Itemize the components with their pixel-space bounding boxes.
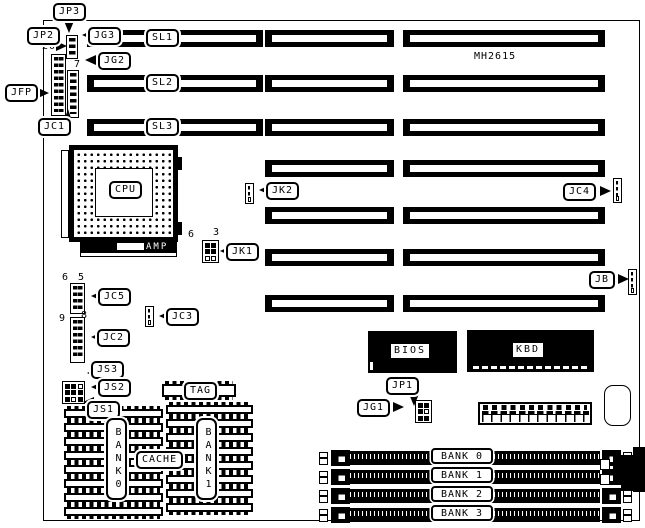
motherboard-layout-diagram: MH2615 SL1 SL2 SL3 20 7 JP3 JP2 JG3 JG2 … bbox=[0, 0, 645, 528]
slot-row5-mid bbox=[265, 207, 394, 224]
jc3-header bbox=[145, 306, 154, 327]
label-sl2: SL2 bbox=[146, 74, 179, 92]
clip-hook bbox=[607, 511, 616, 519]
jc5-pin6-number: 6 bbox=[62, 272, 69, 283]
simm-clip bbox=[331, 507, 350, 523]
cpu-socket-lever bbox=[61, 150, 69, 238]
simm-slot-bank2: BANK 2 bbox=[319, 488, 633, 504]
label-jp2: JP2 bbox=[27, 27, 60, 45]
jk1-pin3-number: 3 bbox=[213, 227, 220, 238]
cpu-socket-tab-top bbox=[177, 157, 182, 170]
label-jc3: JC3 bbox=[166, 308, 199, 326]
label-jc1: JC1 bbox=[38, 118, 71, 136]
label-jg1: JG1 bbox=[357, 399, 390, 417]
jg1-pointer bbox=[393, 402, 409, 412]
keyboard-din-connector-body bbox=[613, 455, 645, 485]
label-cpu: CPU bbox=[109, 181, 142, 199]
label-cache-bank1: BANK1 bbox=[196, 418, 217, 500]
pin bbox=[65, 397, 70, 402]
jc4-pointer bbox=[600, 186, 616, 196]
slot-groove bbox=[410, 300, 598, 307]
label-jfp: JFP bbox=[5, 84, 38, 102]
pin bbox=[71, 397, 76, 402]
jp3-pointer bbox=[64, 21, 74, 38]
slot-groove bbox=[272, 35, 387, 42]
label-tag: TAG bbox=[184, 382, 217, 400]
slot-row4-right bbox=[403, 160, 605, 177]
label-cache-bank0: BANK0 bbox=[106, 418, 127, 500]
model-number: MH2615 bbox=[474, 51, 516, 62]
clip-hook bbox=[336, 473, 345, 481]
simm-slot-bank1: BANK 1 bbox=[319, 469, 633, 485]
endcap-divider bbox=[320, 457, 327, 459]
power-connector bbox=[478, 402, 592, 425]
slot-groove bbox=[410, 80, 598, 87]
simm-endcap bbox=[319, 452, 328, 465]
jc2-pin9-number: 9 bbox=[59, 313, 66, 324]
slot-row7-mid bbox=[265, 295, 394, 312]
jc2-header bbox=[70, 317, 85, 363]
slot-groove bbox=[410, 165, 598, 172]
label-sl1: SL1 bbox=[146, 29, 179, 47]
jg2-pointer bbox=[80, 55, 96, 65]
label-jg3: JG3 bbox=[88, 27, 121, 45]
simm-endcap bbox=[319, 509, 328, 522]
endcap-divider bbox=[624, 495, 631, 497]
endcap-divider bbox=[320, 514, 327, 516]
slot-row6-mid bbox=[265, 249, 394, 266]
pin bbox=[71, 384, 76, 389]
slot-row7-right bbox=[403, 295, 605, 312]
pin bbox=[205, 243, 210, 248]
endcap-divider bbox=[624, 514, 631, 516]
slot-row3-right bbox=[403, 119, 605, 136]
cache-chip bbox=[166, 503, 253, 512]
simm-endcap bbox=[319, 471, 328, 484]
bios-pin1-notch bbox=[370, 362, 373, 370]
power-connector-pin-holes bbox=[482, 414, 589, 422]
slot-row4-mid bbox=[265, 160, 394, 177]
pin bbox=[205, 249, 210, 254]
jc5-pin5-number: 5 bbox=[78, 272, 85, 283]
simm-slot-bank3: BANK 3 bbox=[319, 507, 633, 523]
cache-chip bbox=[64, 507, 163, 516]
slot-row3-mid bbox=[265, 119, 394, 136]
label-jg2: JG2 bbox=[98, 52, 131, 70]
label-jb: JB bbox=[589, 271, 615, 289]
slot-groove bbox=[410, 254, 598, 261]
din-mount-notch bbox=[600, 459, 610, 470]
slot-groove bbox=[272, 300, 387, 307]
simm-endcap bbox=[319, 490, 328, 503]
label-js2: JS2 bbox=[98, 379, 131, 397]
simm-endcap bbox=[623, 509, 632, 522]
pin bbox=[65, 390, 70, 395]
pin bbox=[424, 403, 429, 408]
simm-clip bbox=[331, 469, 350, 485]
label-js3: JS3 bbox=[91, 361, 124, 379]
label-cache: CACHE bbox=[136, 451, 183, 469]
label-js1: JS1 bbox=[87, 401, 120, 419]
slot-groove bbox=[272, 80, 387, 87]
slot-row1-mid bbox=[265, 30, 394, 47]
pin bbox=[65, 384, 70, 389]
slot-groove bbox=[410, 212, 598, 219]
slot-row5-right bbox=[403, 207, 605, 224]
label-jp3: JP3 bbox=[53, 3, 86, 21]
keyboard-din-connector-step bbox=[621, 485, 645, 491]
label-jp1: JP1 bbox=[386, 377, 419, 395]
jk1-pin6-number: 6 bbox=[188, 229, 195, 240]
simm-clip bbox=[331, 450, 350, 466]
label-jc4: JC4 bbox=[563, 183, 596, 201]
amp-brand-text: AMP bbox=[146, 242, 168, 253]
battery-outline bbox=[604, 385, 631, 426]
clip-hook bbox=[607, 492, 616, 500]
jp1-pointer bbox=[409, 394, 419, 411]
endcap-divider bbox=[320, 476, 327, 478]
pin bbox=[71, 390, 76, 395]
amp-socket-window bbox=[117, 243, 144, 250]
slot-groove bbox=[272, 212, 387, 219]
pin bbox=[78, 384, 83, 389]
clip-hook bbox=[336, 492, 345, 500]
label-bank2: BANK 2 bbox=[431, 486, 493, 502]
simm-clip bbox=[331, 488, 350, 504]
jc2-pin8-number: 8 bbox=[81, 310, 88, 321]
cache-chip bbox=[166, 405, 253, 414]
clip-hook bbox=[336, 511, 345, 519]
power-connector-pins-top bbox=[483, 405, 587, 410]
simm-clip bbox=[602, 488, 621, 504]
simm-clip bbox=[602, 507, 621, 523]
simm-slot-bank0: BANK 0 bbox=[319, 450, 633, 466]
label-jk1: JK1 bbox=[226, 243, 259, 261]
pin bbox=[211, 256, 216, 261]
pin bbox=[205, 256, 210, 261]
slot-row2-mid bbox=[265, 75, 394, 92]
din-mount-notch bbox=[600, 474, 610, 485]
slot-groove bbox=[272, 165, 387, 172]
pin bbox=[424, 409, 429, 414]
cpu-socket-tab-bottom bbox=[177, 222, 182, 235]
slot-groove bbox=[410, 35, 598, 42]
kbd-chip-pins bbox=[473, 366, 589, 369]
pin bbox=[424, 416, 429, 421]
label-sl3: SL3 bbox=[146, 118, 179, 136]
slot-row2-right bbox=[403, 75, 605, 92]
label-bios: BIOS bbox=[391, 344, 429, 358]
jk2-header bbox=[245, 183, 254, 204]
jb-pointer bbox=[618, 274, 634, 284]
jfp-pointer bbox=[38, 88, 54, 98]
slot-row6-right bbox=[403, 249, 605, 266]
label-jc5: JC5 bbox=[98, 288, 131, 306]
label-jk2: JK2 bbox=[266, 182, 299, 200]
pin bbox=[418, 416, 423, 421]
slot-row1-right bbox=[403, 30, 605, 47]
slot-groove bbox=[272, 124, 387, 131]
endcap-divider bbox=[320, 495, 327, 497]
slot-groove bbox=[410, 124, 598, 131]
clip-hook bbox=[336, 454, 345, 462]
label-bank0: BANK 0 bbox=[431, 448, 493, 464]
label-bank1: BANK 1 bbox=[431, 467, 493, 483]
slot-groove bbox=[272, 254, 387, 261]
label-jc2: JC2 bbox=[97, 329, 130, 347]
pin bbox=[78, 390, 83, 395]
simm-endcap bbox=[623, 490, 632, 503]
label-kbd: KBD bbox=[513, 343, 543, 357]
label-bank3: BANK 3 bbox=[431, 505, 493, 521]
